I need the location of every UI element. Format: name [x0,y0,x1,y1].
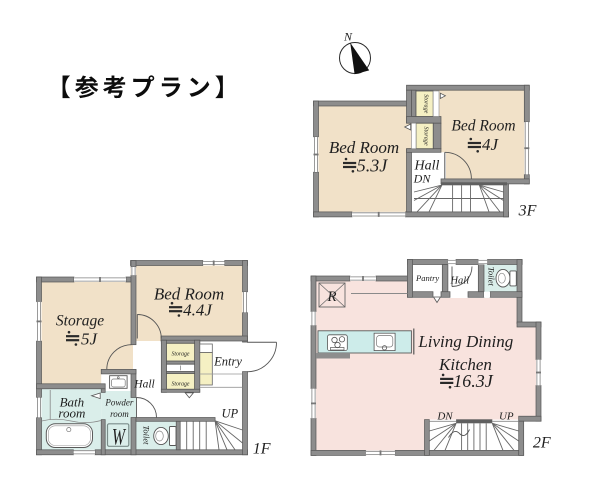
svg-text:Storage: Storage [423,126,430,146]
svg-text:Storage: Storage [56,313,104,330]
svg-text:DN: DN [413,171,432,185]
svg-text:Pantry: Pantry [415,273,439,283]
svg-text:4.4J: 4.4J [183,301,213,320]
svg-text:2F: 2F [533,435,551,452]
svg-text:DN: DN [436,411,453,423]
svg-text:UP: UP [499,411,514,423]
svg-text:5J: 5J [81,330,99,349]
svg-text:W: W [112,425,126,451]
svg-text:room: room [58,405,85,420]
svg-text:Toilet: Toilet [142,425,152,445]
svg-text:Hall: Hall [449,276,469,287]
svg-text:Living Dining: Living Dining [417,332,513,351]
svg-text:Toilet: Toilet [487,267,497,287]
svg-text:16.3J: 16.3J [453,371,494,391]
svg-text:Bed Room: Bed Room [451,118,515,135]
svg-text:N: N [343,29,353,43]
svg-text:Bed Room: Bed Room [329,138,399,157]
svg-text:5.3J: 5.3J [357,156,389,176]
svg-text:Entry: Entry [213,355,242,369]
svg-text:1F: 1F [253,441,271,458]
svg-text:room: room [110,409,129,419]
svg-text:Storage: Storage [423,94,430,114]
svg-text:4J: 4J [482,135,500,154]
svg-text:Storage: Storage [171,382,189,388]
svg-text:Storage: Storage [171,352,189,358]
svg-text:Hall: Hall [133,379,154,391]
svg-text:UP: UP [221,406,238,420]
svg-text:R: R [326,289,336,305]
svg-text:Powder: Powder [104,398,133,408]
svg-text:3F: 3F [518,203,537,220]
